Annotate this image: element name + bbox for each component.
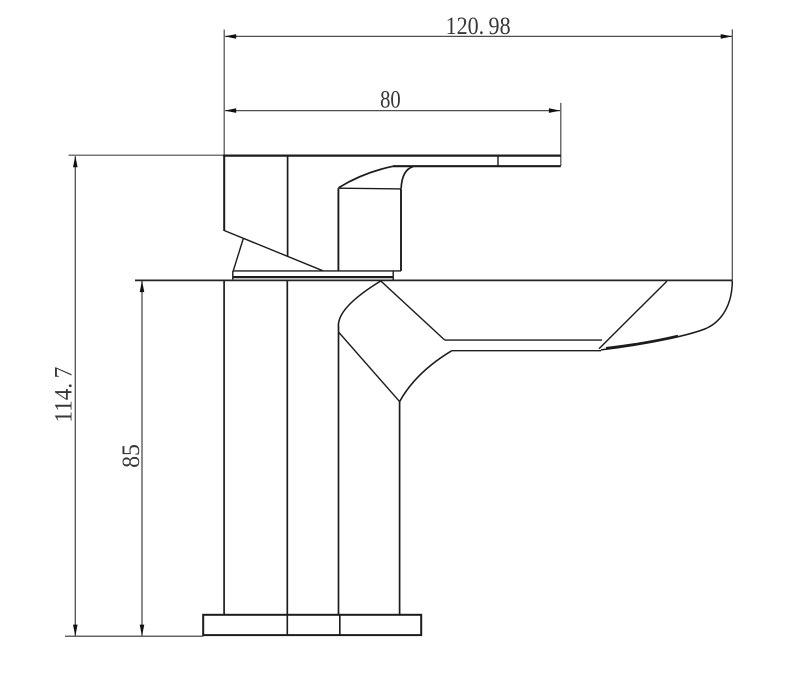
svg-text:85: 85 bbox=[118, 444, 145, 468]
svg-text:114. 7: 114. 7 bbox=[51, 367, 78, 423]
svg-text:120. 98: 120. 98 bbox=[446, 13, 511, 40]
svg-text:80: 80 bbox=[380, 86, 401, 113]
